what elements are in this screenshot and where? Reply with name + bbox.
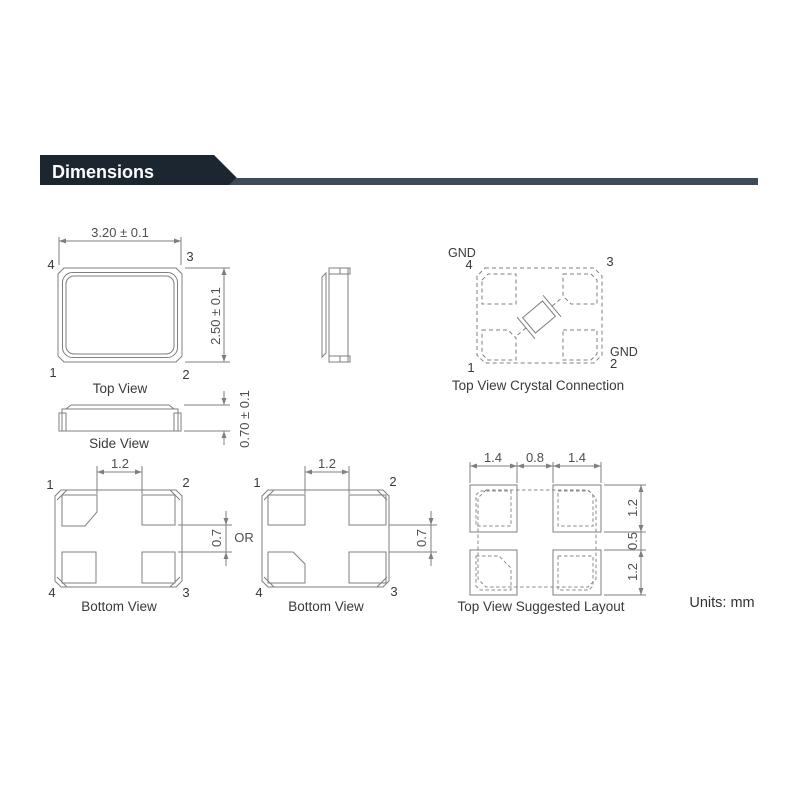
dim-gap-vertical: 0.5 [625,532,640,550]
dim-height-label: 2.50 ± 0.1 [208,287,223,345]
section-title: Dimensions [52,162,154,182]
side-view-caption: Side View [89,436,149,451]
pin-4-label: 4 [255,585,262,600]
dim-right-label: 0.7 [414,529,429,547]
dim-height-label: 0.70 ± 0.1 [237,390,252,448]
dim-width-label: 3.20 ± 0.1 [91,225,149,240]
pin-2-label: 2 [389,474,396,489]
pin-4-label: 4 [47,257,54,272]
pin-1-label: 1 [253,475,260,490]
pin-3-label: 3 [182,585,189,600]
dim-top-label: 1.2 [111,456,129,471]
dim-pad-width-right: 1.4 [568,450,586,465]
or-label: OR [234,530,254,545]
pin-2-label: 2 [182,367,189,382]
dim-pad-height-bottom: 1.2 [625,563,640,581]
dim-top-label: 1.2 [318,456,336,471]
pin-2-label: 2 [610,356,617,371]
pin-1-label: 1 [49,365,56,380]
bottom-view-a-caption: Bottom View [81,599,157,614]
pin-3-label: 3 [186,249,193,264]
pin-2-label: 2 [182,475,189,490]
datasheet-dimensions-page: Dimensions 3.20 ± 0.1 2.50 ± 0.1 4 3 1 2… [0,0,800,800]
pin-4-label: 4 [48,585,55,600]
dim-pad-height-top: 1.2 [625,499,640,517]
units-label: Units: mm [689,595,754,611]
pin-3-label: 3 [390,584,397,599]
suggested-layout-caption: Top View Suggested Layout [457,599,624,614]
top-view-caption: Top View [93,381,148,396]
pin-3-label: 3 [606,254,613,269]
page-background [0,0,800,800]
pin-1-label: 1 [467,360,474,375]
bottom-view-b-caption: Bottom View [288,599,364,614]
dim-gap-horizontal: 0.8 [526,450,544,465]
dimensions-drawing: Dimensions 3.20 ± 0.1 2.50 ± 0.1 4 3 1 2… [0,0,800,800]
crystal-connection-caption: Top View Crystal Connection [452,378,624,393]
pin-1-label: 1 [46,477,53,492]
header-banner-bar [229,178,758,185]
dim-pad-width-left: 1.4 [484,450,502,465]
dim-right-label: 0.7 [209,529,224,547]
pin-4-label: 4 [465,257,472,272]
